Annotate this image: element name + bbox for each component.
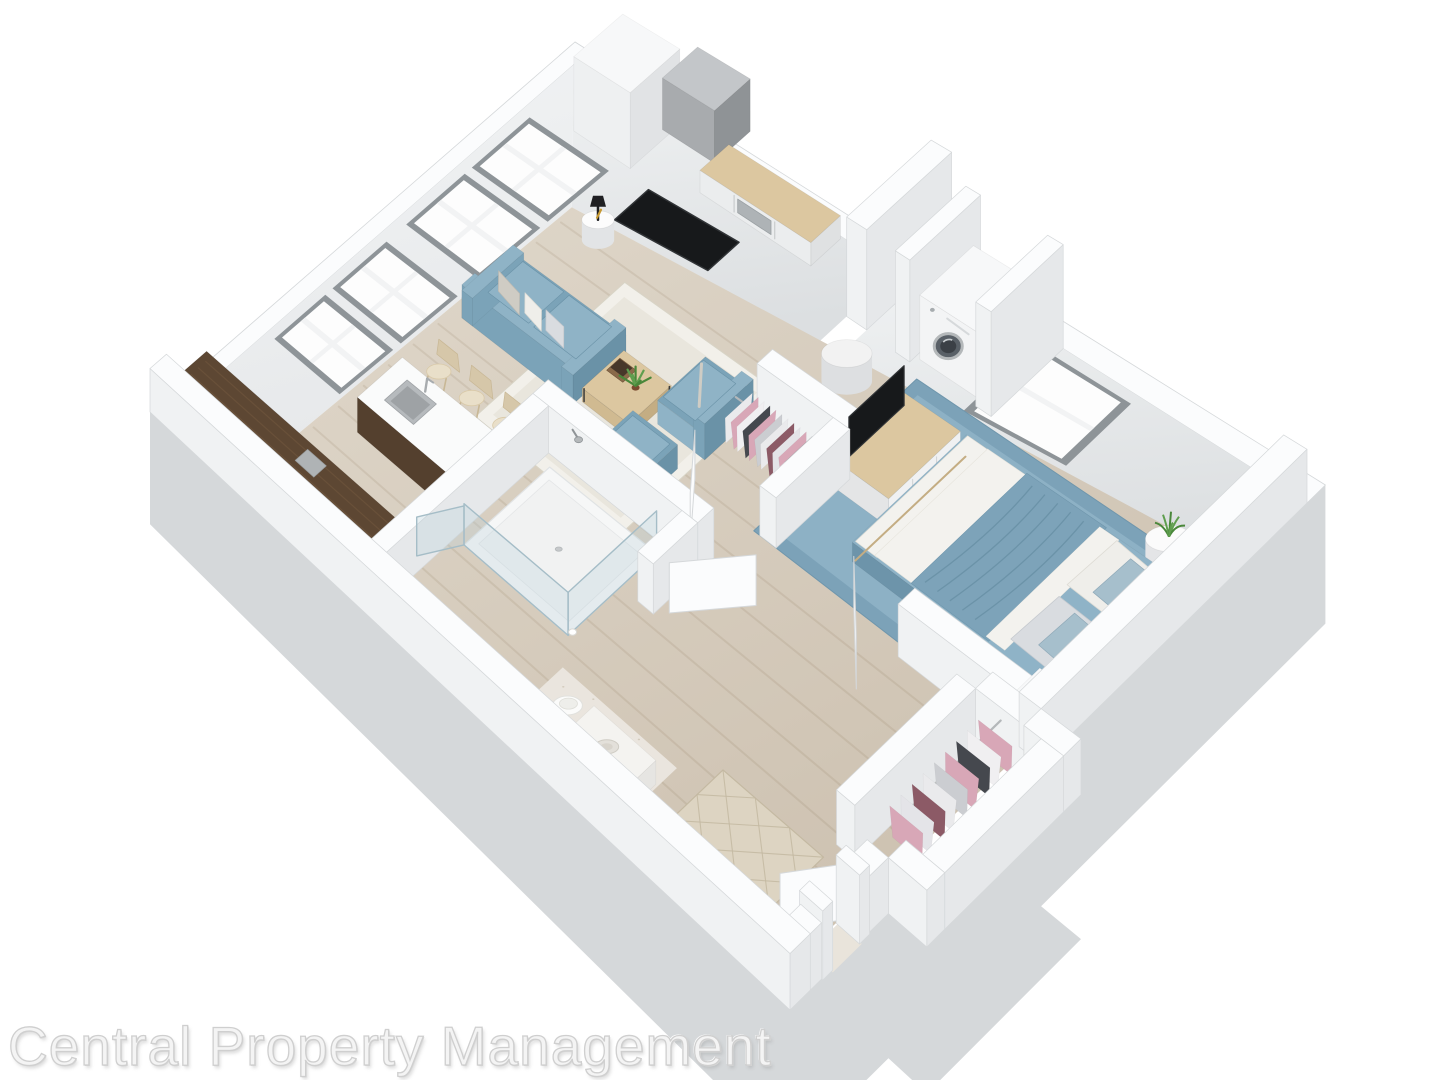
interior-door bbox=[669, 555, 756, 613]
laundry-basket bbox=[821, 340, 872, 395]
floor-plan-stage: Central Property Management bbox=[0, 0, 1440, 1080]
watermark: Central Property Management bbox=[8, 1014, 772, 1078]
floor-plan-3d-render bbox=[0, 0, 1440, 1080]
